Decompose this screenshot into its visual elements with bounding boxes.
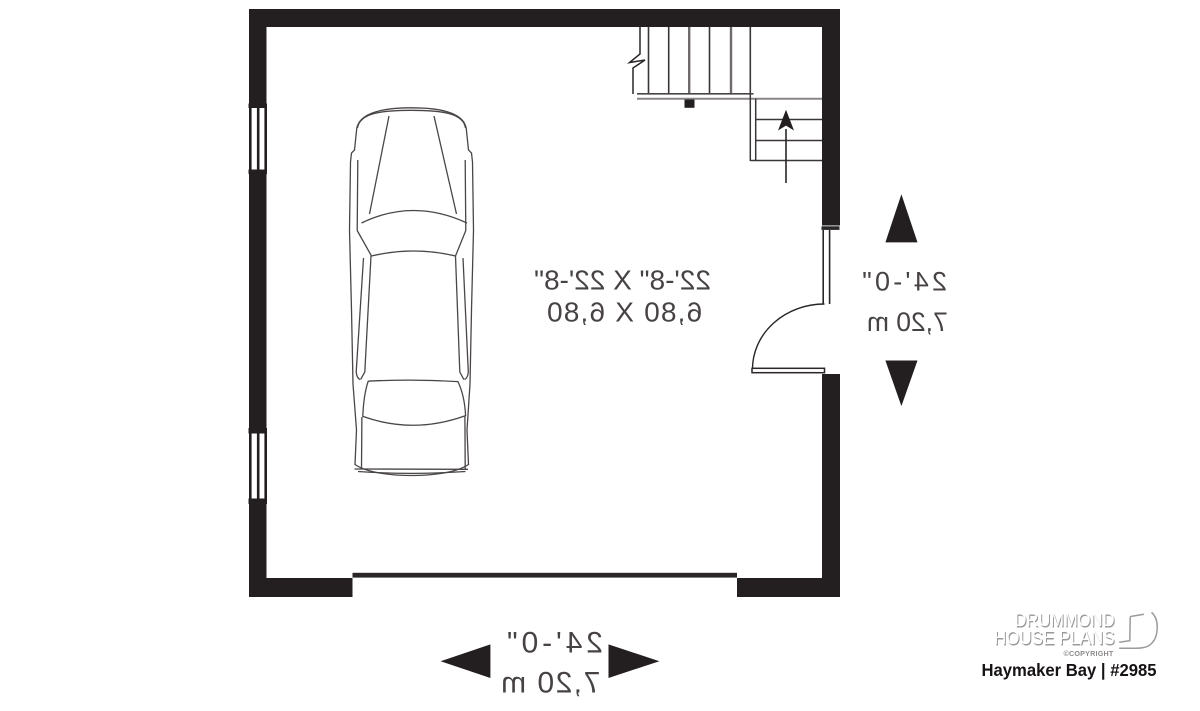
svg-text:22'-8" X 22'-8": 22'-8" X 22'-8" xyxy=(534,265,711,296)
svg-text:DRUMMOND: DRUMMOND xyxy=(1015,610,1115,630)
svg-text:Haymaker Bay | #2985: Haymaker Bay | #2985 xyxy=(982,660,1157,680)
svg-text:24'-0": 24'-0" xyxy=(859,267,947,297)
svg-text:7,20 m: 7,20 m xyxy=(500,667,601,700)
svg-text:6,80 X 6,80: 6,80 X 6,80 xyxy=(546,297,702,328)
svg-text:7,20 m: 7,20 m xyxy=(867,307,948,337)
svg-text:24'-0": 24'-0" xyxy=(503,627,603,660)
svg-text:©COPYRIGHT: ©COPYRIGHT xyxy=(1063,649,1113,658)
svg-text:HOUSE PLANS: HOUSE PLANS xyxy=(994,628,1115,649)
